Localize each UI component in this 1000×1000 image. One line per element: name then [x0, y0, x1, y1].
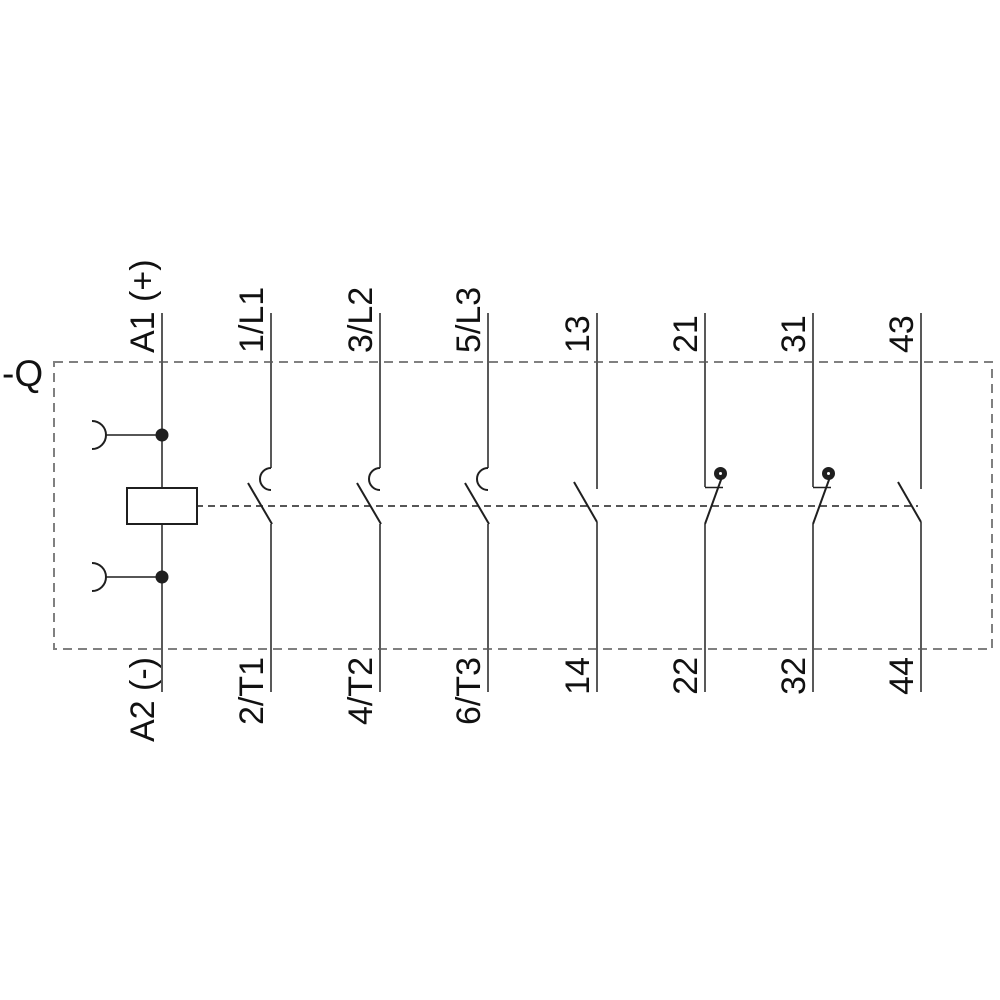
moving-contact [813, 477, 830, 524]
terminal-label-a2: A2 (-) [126, 657, 160, 742]
schematic-svg [0, 0, 1000, 1000]
schematic-canvas: -Q A1 (+) 1/L1 3/L2 5/L3 13 21 31 43 A2 … [0, 0, 1000, 1000]
pole-1l1 [248, 313, 272, 692]
pole-31 [813, 313, 833, 692]
terminal-label-4t2: 4/T2 [344, 657, 378, 725]
terminal-label-2t1: 2/T1 [235, 657, 269, 725]
terminal-label-32: 32 [777, 657, 811, 695]
terminal-label-22: 22 [669, 657, 703, 695]
pole-3l2 [357, 313, 381, 692]
terminal-label-13: 13 [561, 315, 595, 353]
moving-contact [574, 482, 597, 522]
pole-5l3 [465, 313, 489, 692]
terminal-label-44: 44 [885, 657, 919, 695]
terminal-label-6t3: 6/T3 [452, 657, 486, 725]
terminal-label-43: 43 [885, 315, 919, 353]
coil-branch [92, 313, 197, 692]
pole-21 [705, 313, 725, 692]
junction-dot [156, 429, 169, 442]
pole-43 [898, 313, 921, 692]
terminal-label-14: 14 [561, 657, 595, 695]
nc-contact-point-dot [717, 470, 725, 478]
moving-contact [705, 477, 722, 524]
terminal-label-1l1: 1/L1 [235, 287, 269, 353]
terminal-label-31: 31 [777, 315, 811, 353]
terminal-label-5l3: 5/L3 [452, 287, 486, 353]
moving-contact [898, 482, 921, 522]
main-contact-arc [369, 468, 380, 490]
terminal-label-3l2: 3/L2 [344, 287, 378, 353]
terminal-label-a1: A1 (+) [126, 259, 160, 353]
coil-connection-socket-arc [92, 563, 106, 591]
pole-13 [574, 313, 597, 692]
device-designation-label: -Q [2, 355, 43, 392]
nc-contact-point-dot [825, 470, 833, 478]
junction-dot [156, 571, 169, 584]
coil-connection-socket-arc [92, 421, 106, 449]
coil-box [127, 488, 197, 524]
main-contact-arc [260, 468, 271, 490]
terminal-label-21: 21 [669, 315, 703, 353]
main-contact-arc [477, 468, 488, 490]
